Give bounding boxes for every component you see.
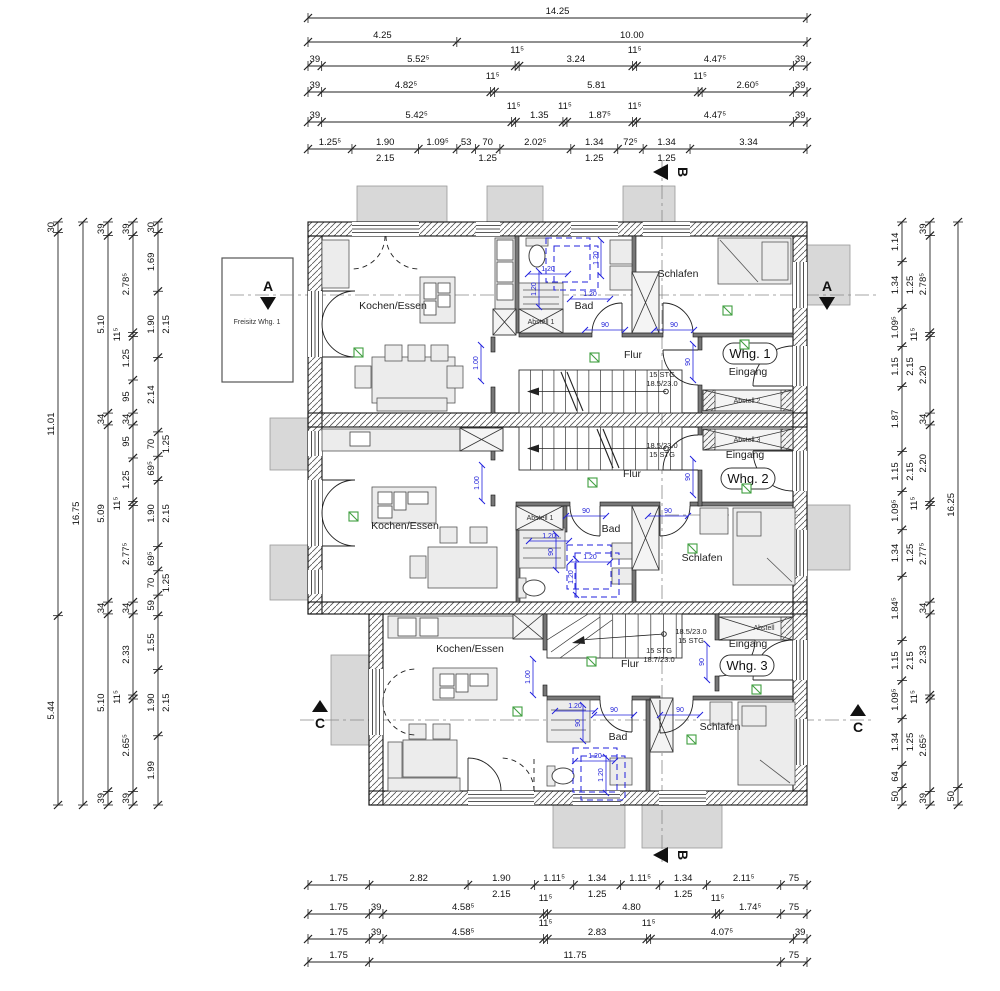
dimension-label: 11⁵ (628, 45, 642, 56)
dimension-chain: 1.752.821.902.151.11⁵1.341.251.11⁵1.341.… (304, 873, 811, 900)
dimension-label: 1.09⁵ (890, 316, 901, 338)
dimension-sublabel: 1.25 (585, 153, 604, 164)
dimension-label: 1.25 (121, 470, 132, 489)
storage-label: Abstell 1 (528, 319, 555, 326)
furniture (431, 345, 448, 361)
annotations: 14.254.2510.00395.52⁵11⁵3.2411⁵4.47⁵3939… (46, 6, 963, 967)
partition-wall (715, 614, 719, 640)
terrace (553, 805, 625, 848)
door-swing-dashed (501, 758, 534, 791)
storage-label: Abstell 1 (527, 515, 554, 522)
dimension-label: 2.14 (146, 385, 157, 404)
dimension-chain: 16.75 (71, 218, 88, 809)
floor-plan-page: 14.254.2510.00395.52⁵11⁵3.2411⁵4.47⁵3939… (0, 0, 1000, 991)
dimension-sublabel: 2.15 (161, 315, 172, 334)
dimension-label: 75 (789, 873, 800, 884)
dimension-label: 1.34 (674, 873, 693, 884)
furniture (742, 706, 766, 726)
partition-wall (491, 495, 495, 506)
dimension-label: 4.58⁵ (452, 902, 474, 913)
dimension-sublabel: 1.25 (674, 889, 693, 900)
furniture (409, 724, 426, 739)
dimension-sublabel: 1.25 (161, 435, 172, 454)
dimension-label: 4.47⁵ (704, 54, 726, 65)
dimension-label: 11⁵ (909, 690, 920, 704)
door-swing (600, 700, 632, 732)
terrace (807, 245, 850, 305)
stair-note: 18.5/23.0 (646, 379, 677, 388)
wall (308, 413, 807, 427)
dimension-label: 2.83 (588, 927, 607, 938)
dimension-label: 1.14 (890, 233, 901, 252)
dimension-label: 11⁵ (539, 893, 553, 904)
furniture (322, 429, 460, 451)
dimension-label: 39 (371, 927, 382, 938)
section-letter: A (822, 278, 832, 294)
dimension-label: 39 (96, 793, 107, 804)
section-letter: A (263, 278, 273, 294)
dimension-label: 39 (795, 54, 806, 65)
dimension-label: 50 (946, 791, 957, 802)
dimension-chain: 392.78⁵11⁵1.259534951.2511⁵2.77⁵342.3311… (112, 218, 138, 809)
dimension-label: 39 (918, 793, 929, 804)
room-label: Bad (609, 731, 628, 743)
sanitary-dimension-label: 1.00 (474, 476, 481, 490)
dimension-label: 5.10 (96, 693, 107, 712)
stair-note: 15 STG (649, 450, 675, 459)
dimension-label: 5.52⁵ (407, 54, 429, 65)
dimension-sublabel: 2.15 (161, 504, 172, 523)
dimension-sublabel: 1.25 (905, 544, 916, 563)
furniture (355, 366, 371, 388)
partition-wall (543, 685, 547, 696)
sanitary-dimension-label: 90 (685, 473, 692, 481)
room-label: Flur (621, 658, 640, 670)
sanitary-dimension-label: 90 (676, 707, 684, 714)
furniture (403, 740, 457, 777)
dimension-label: 39 (310, 54, 321, 65)
dimension-label: 2.77⁵ (918, 543, 929, 565)
dimension-chain: 395.42⁵11⁵1.3511⁵1.87⁵11⁵4.47⁵39 (304, 101, 811, 127)
dimension-sublabel: 1.25 (905, 733, 916, 752)
furniture (428, 547, 497, 588)
smoke-detector-icon (349, 512, 358, 521)
dimension-label: 72⁵ (623, 137, 638, 148)
wall (308, 602, 807, 614)
dimension-chain: 301.691.902.152.14701.2569⁵1.902.1569⁵70… (146, 218, 172, 809)
dimension-label: 5.81 (587, 80, 606, 91)
dimension-label: 2.20 (918, 366, 929, 385)
section-marker-b: B (653, 847, 691, 863)
dimension-label: 75 (789, 950, 800, 961)
partition-wall (646, 700, 650, 791)
dimension-chain: 1.75394.58⁵11⁵4.8011⁵1.74⁵75 (304, 893, 811, 919)
dimension-label: 75 (789, 902, 800, 913)
stair-note: 18.5/23.0 (675, 627, 706, 636)
smoke-detector-icon (687, 735, 696, 744)
partition-wall (491, 387, 495, 413)
door-swing (322, 480, 355, 513)
sanitary-dimension-label: 90 (699, 658, 706, 666)
partition-wall (600, 502, 660, 506)
dimension-label: 1.09⁵ (890, 499, 901, 521)
stair-note: 15 STG (678, 636, 704, 645)
room-label: Kochen/Essen (359, 300, 427, 312)
dimension-sublabel: 2.15 (905, 651, 916, 670)
partition-wall (698, 470, 702, 506)
smoke-detector-icon (513, 707, 522, 716)
furniture (440, 527, 457, 543)
dimension-chain: 394.82⁵11⁵5.8111⁵2.60⁵39 (304, 71, 811, 97)
door-swing (468, 758, 501, 791)
stair-note: 15 STG (646, 646, 672, 655)
storage-label: Abstell (753, 625, 774, 632)
dimension-label: 1.15 (890, 357, 901, 376)
dimension-sublabel: 2.15 (905, 462, 916, 481)
smoke-detector-icon (742, 484, 751, 493)
dimension-label: 1.15 (890, 651, 901, 670)
dimension-label: 34 (918, 414, 929, 425)
dimension-label: 1.09⁵ (426, 137, 448, 148)
dimension-sublabel: 2.15 (161, 693, 172, 712)
smoke-detector-icon (723, 306, 732, 315)
dimension-sublabel: 1.25 (161, 574, 172, 593)
dimension-label: 11⁵ (628, 101, 642, 112)
dimension-label: 11⁵ (507, 101, 521, 112)
dimension-label: 30 (46, 222, 57, 233)
dimension-label: 1.87⁵ (589, 110, 611, 121)
sanitary-dimension: 1.00 (474, 462, 485, 504)
dimension-label: 53 (461, 137, 472, 148)
section-marker-c: C (312, 700, 328, 731)
dimension-chain: 1.25⁵1.902.151.09⁵53701.252.02⁵1.341.257… (304, 137, 811, 164)
dimension-chain: 1.7511.7575 (304, 950, 811, 967)
dimension-label: 1.90 (146, 315, 157, 334)
dimension-label: 4.47⁵ (704, 110, 726, 121)
dimension-label: 11⁵ (909, 328, 920, 342)
furniture (388, 778, 460, 791)
smoke-detector-icon (590, 353, 599, 362)
terrace (331, 655, 369, 745)
dimension-chain: 4.2510.00 (304, 30, 811, 47)
dimension-chain: 395.10345.09345.1039 (96, 218, 113, 809)
partition-wall (690, 502, 793, 506)
dimension-label: 1.90 (376, 137, 395, 148)
sanitary-dimension-label: 1.20 (541, 266, 555, 273)
section-letter: B (675, 167, 691, 177)
room-label: Kochen/Essen (371, 520, 439, 532)
dimension-label: 16.25 (946, 493, 957, 517)
sanitary-dimension-label: 1.20 (531, 282, 538, 296)
dimension-label: 2.20 (918, 454, 929, 473)
furniture (737, 512, 761, 536)
sanitary-dimension-label: 90 (610, 707, 618, 714)
dimension-label: 2.60⁵ (737, 80, 759, 91)
partition-wall (547, 696, 600, 700)
furniture (470, 527, 487, 543)
dimension-sublabel: 1.25 (478, 153, 497, 164)
dimension-label: 2.65⁵ (918, 734, 929, 756)
sanitary-dimension-label: 1.20 (583, 554, 597, 561)
apartment-badge-label: Whg. 3 (726, 658, 767, 673)
dimension-sublabel: 1.25 (588, 889, 607, 900)
dimension-label: 34 (121, 414, 132, 425)
dimension-label: 1.25 (121, 349, 132, 368)
smoke-detector-icon (688, 544, 697, 553)
dimension-label: 1.90 (492, 873, 511, 884)
dimension-label: 1.55 (146, 633, 157, 652)
section-marker-b: B (653, 164, 691, 180)
dimension-label: 1.90 (146, 693, 157, 712)
dimension-label: 1.34 (585, 137, 604, 148)
dimension-label: 4.25 (373, 30, 392, 41)
dimension-chain: 392.78⁵11⁵2.20342.2011⁵2.77⁵342.3311⁵2.6… (909, 218, 935, 809)
dimension-label: 2.65⁵ (121, 734, 132, 756)
door-swing-dashed (386, 236, 419, 269)
door-swing (322, 291, 355, 324)
sanitary-dimension-label: 1.20 (593, 251, 600, 265)
dimension-label: 4.58⁵ (452, 927, 474, 938)
partition-wall (543, 614, 547, 650)
furniture (612, 568, 632, 584)
dimension-label: 2.78⁵ (121, 273, 132, 295)
partition-wall (698, 337, 702, 350)
partition-wall (622, 333, 663, 337)
room-label: Flur (624, 349, 643, 361)
smoke-detector-icon (588, 478, 597, 487)
partition-wall (698, 385, 702, 413)
dimension-label: 2.33 (918, 645, 929, 664)
room-label: Eingang (729, 366, 768, 378)
dimension-label: 39 (96, 223, 107, 234)
terrace (357, 186, 447, 222)
dimension-label: 39 (121, 223, 132, 234)
sanitary-dimension-label: 90 (664, 508, 672, 515)
section-letter: C (315, 715, 325, 731)
door-swing-dashed (352, 236, 385, 269)
sanitary-dimension-label: 90 (548, 548, 555, 556)
sanitary-dimension: 1.00 (473, 342, 484, 384)
room-label: Schlafen (700, 721, 741, 733)
dimension-label: 39 (371, 902, 382, 913)
furniture (372, 357, 455, 403)
toilet (552, 768, 574, 784)
dimension-label: 3.34 (739, 137, 758, 148)
dimension-label: 70 (146, 439, 157, 450)
dimension-label: 69⁵ (146, 551, 157, 566)
toilet (523, 580, 545, 596)
sanitary-dimension: 1.20 (567, 554, 613, 565)
furniture (322, 240, 349, 288)
section-marker-c: C (850, 704, 866, 735)
sanitary-dimension-label: 1.00 (473, 356, 480, 370)
dimension-label: 5.42⁵ (405, 110, 427, 121)
sanitary-dimension-label: 1.20 (568, 703, 582, 710)
dimension-label: 11⁵ (112, 328, 123, 342)
dimension-label: 95 (121, 391, 132, 402)
dimension-label: 1.74⁵ (739, 902, 761, 913)
dimension-label: 64 (890, 771, 901, 782)
stair-note: 18.7/23.0 (643, 655, 674, 664)
terrace (270, 545, 308, 600)
dimension-label: 59 (146, 600, 157, 611)
dimension-label: 2.77⁵ (121, 543, 132, 565)
door-swing (663, 303, 693, 333)
dimension-sublabel: 2.15 (376, 153, 395, 164)
room-label: Schlafen (682, 552, 723, 564)
furniture (610, 266, 632, 290)
stair-note: 18.5/23.0 (646, 441, 677, 450)
partition-wall (491, 337, 495, 352)
sanitary-dimension-label: 1.20 (588, 753, 602, 760)
dimension-label: 2.78⁵ (918, 273, 929, 295)
sanitary-dimension: 90 (699, 641, 710, 683)
dimension-label: 1.34 (588, 873, 607, 884)
dimension-sublabel: 1.25 (905, 276, 916, 295)
dimension-label: 34 (918, 603, 929, 614)
sanitary-dimension-label: 1.00 (525, 670, 532, 684)
dimension-label: 11⁵ (909, 497, 920, 511)
dimension-label: 1.34 (890, 276, 901, 295)
dimension-label: 39 (918, 223, 929, 234)
dimension-chain: 14.25 (304, 6, 811, 23)
sanitary-dimension-label: 1.20 (583, 291, 597, 298)
toilet (529, 245, 545, 267)
dimension-label: 10.00 (620, 30, 644, 41)
dimension-label: 11.01 (46, 413, 57, 436)
room-label: Schlafen (658, 268, 699, 280)
sanitary-dimension-label: 90 (601, 322, 609, 329)
furniture (410, 556, 426, 578)
door-swing-dashed (383, 669, 416, 702)
dimension-label: 39 (310, 80, 321, 91)
dimension-label: 39 (121, 793, 132, 804)
dimension-label: 11⁵ (112, 690, 123, 704)
dimension-label: 1.11⁵ (543, 873, 565, 884)
dimension-sublabel: 2.15 (905, 357, 916, 376)
terrace (807, 505, 850, 570)
furniture (700, 508, 728, 534)
dimension-label: 1.25⁵ (319, 137, 341, 148)
room-label: Eingang (726, 449, 765, 461)
dimension-label: 70 (482, 137, 493, 148)
furniture (433, 724, 450, 739)
dimension-label: 5.44 (46, 701, 57, 720)
storage-label: Abstell 3 (734, 437, 761, 444)
dimension-label: 39 (795, 110, 806, 121)
sanitary-dimension-label: 90 (575, 719, 582, 727)
room-label: Bad (602, 523, 621, 535)
partition-wall (698, 427, 702, 435)
smoke-detector-icon (752, 685, 761, 694)
dimension-label: 4.07⁵ (711, 927, 733, 938)
partition-wall (519, 333, 592, 337)
dimension-label: 70 (146, 578, 157, 589)
sanitary-dimension: 1.00 (525, 656, 536, 698)
terrace (623, 186, 675, 222)
dimension-label: 1.90 (146, 504, 157, 523)
dimension-chain: 16.2550 (946, 218, 963, 809)
partition-wall (693, 696, 793, 700)
dimension-label: 4.82⁵ (395, 80, 417, 91)
terrace (270, 418, 308, 470)
dimension-label: 95 (121, 436, 132, 447)
dimension-label: 1.34 (657, 137, 676, 148)
sanitary-dimension-label: 1.20 (598, 768, 605, 782)
section-letter: C (853, 719, 863, 735)
dimension-label: 1.35 (530, 110, 549, 121)
sanitary-dimension: 1.20 (525, 266, 571, 277)
room-label: Flur (623, 468, 642, 480)
sanitary-dimension: 90 (582, 322, 628, 333)
dimension-label: 1.09⁵ (890, 688, 901, 710)
storage-label: Freisitz Whg. 1 (234, 319, 281, 326)
partition-wall (693, 333, 793, 337)
sanitary-dimension: 90 (685, 341, 696, 383)
dimension-label: 39 (795, 927, 806, 938)
stair-note: 15 STG (649, 370, 675, 379)
interior-fittings (322, 236, 795, 791)
dimension-label: 11⁵ (112, 497, 123, 511)
dimension-label: 39 (310, 110, 321, 121)
dimension-label: 11⁵ (642, 918, 656, 929)
partition-wall (715, 676, 719, 691)
dimension-label: 50 (890, 791, 901, 802)
sanitary-dimension-label: 90 (582, 508, 590, 515)
smoke-detector-icon (740, 340, 749, 349)
dimension-label: 4.80 (622, 902, 641, 913)
dimension-label: 1.69 (146, 253, 157, 272)
dimension-label: 1.75 (329, 902, 348, 913)
sanitary-dimension-label: 90 (685, 358, 692, 366)
furniture (377, 398, 447, 411)
dimension-label: 39 (795, 80, 806, 91)
dimension-sublabel: 2.15 (492, 889, 511, 900)
shower-outline (546, 238, 590, 282)
sanitary-dimension: 90 (685, 456, 696, 498)
dimension-chain: 1.75394.58⁵11⁵2.8311⁵4.07⁵39 (304, 918, 811, 944)
dimension-label: 5.09 (96, 504, 107, 523)
furniture (385, 345, 402, 361)
section-letter: B (675, 850, 691, 860)
door-swing (322, 324, 355, 357)
dimension-label: 2.82 (409, 873, 428, 884)
storage-label: Abstell 2 (734, 398, 761, 405)
dimension-chain: 3011.015.44 (46, 218, 63, 809)
dimension-label: 1.84⁵ (890, 597, 901, 619)
partition-wall (516, 502, 570, 506)
smoke-detector-icon (354, 348, 363, 357)
sanitary-dimension-label: 1.20 (542, 533, 556, 540)
sanitary-dimension: 1.20 (598, 754, 609, 796)
dimension-label: 1.99 (146, 761, 157, 780)
dimension-label: 11⁵ (510, 45, 524, 56)
dimension-label: 1.11⁵ (629, 873, 651, 884)
dimension-label: 14.25 (546, 6, 570, 17)
room-label: Kochen/Essen (436, 643, 504, 655)
dimension-label: 11⁵ (558, 101, 572, 112)
dimension-label: 11.75 (563, 950, 586, 961)
dimension-label: 1.34 (890, 733, 901, 752)
furniture (610, 240, 632, 264)
terrace (487, 186, 543, 222)
furniture (762, 242, 788, 280)
dimension-label: 1.75 (329, 927, 348, 938)
room-label: Bad (575, 300, 594, 312)
dimension-label: 11⁵ (486, 71, 500, 82)
room-label: Eingang (729, 638, 768, 650)
furniture (612, 543, 632, 559)
